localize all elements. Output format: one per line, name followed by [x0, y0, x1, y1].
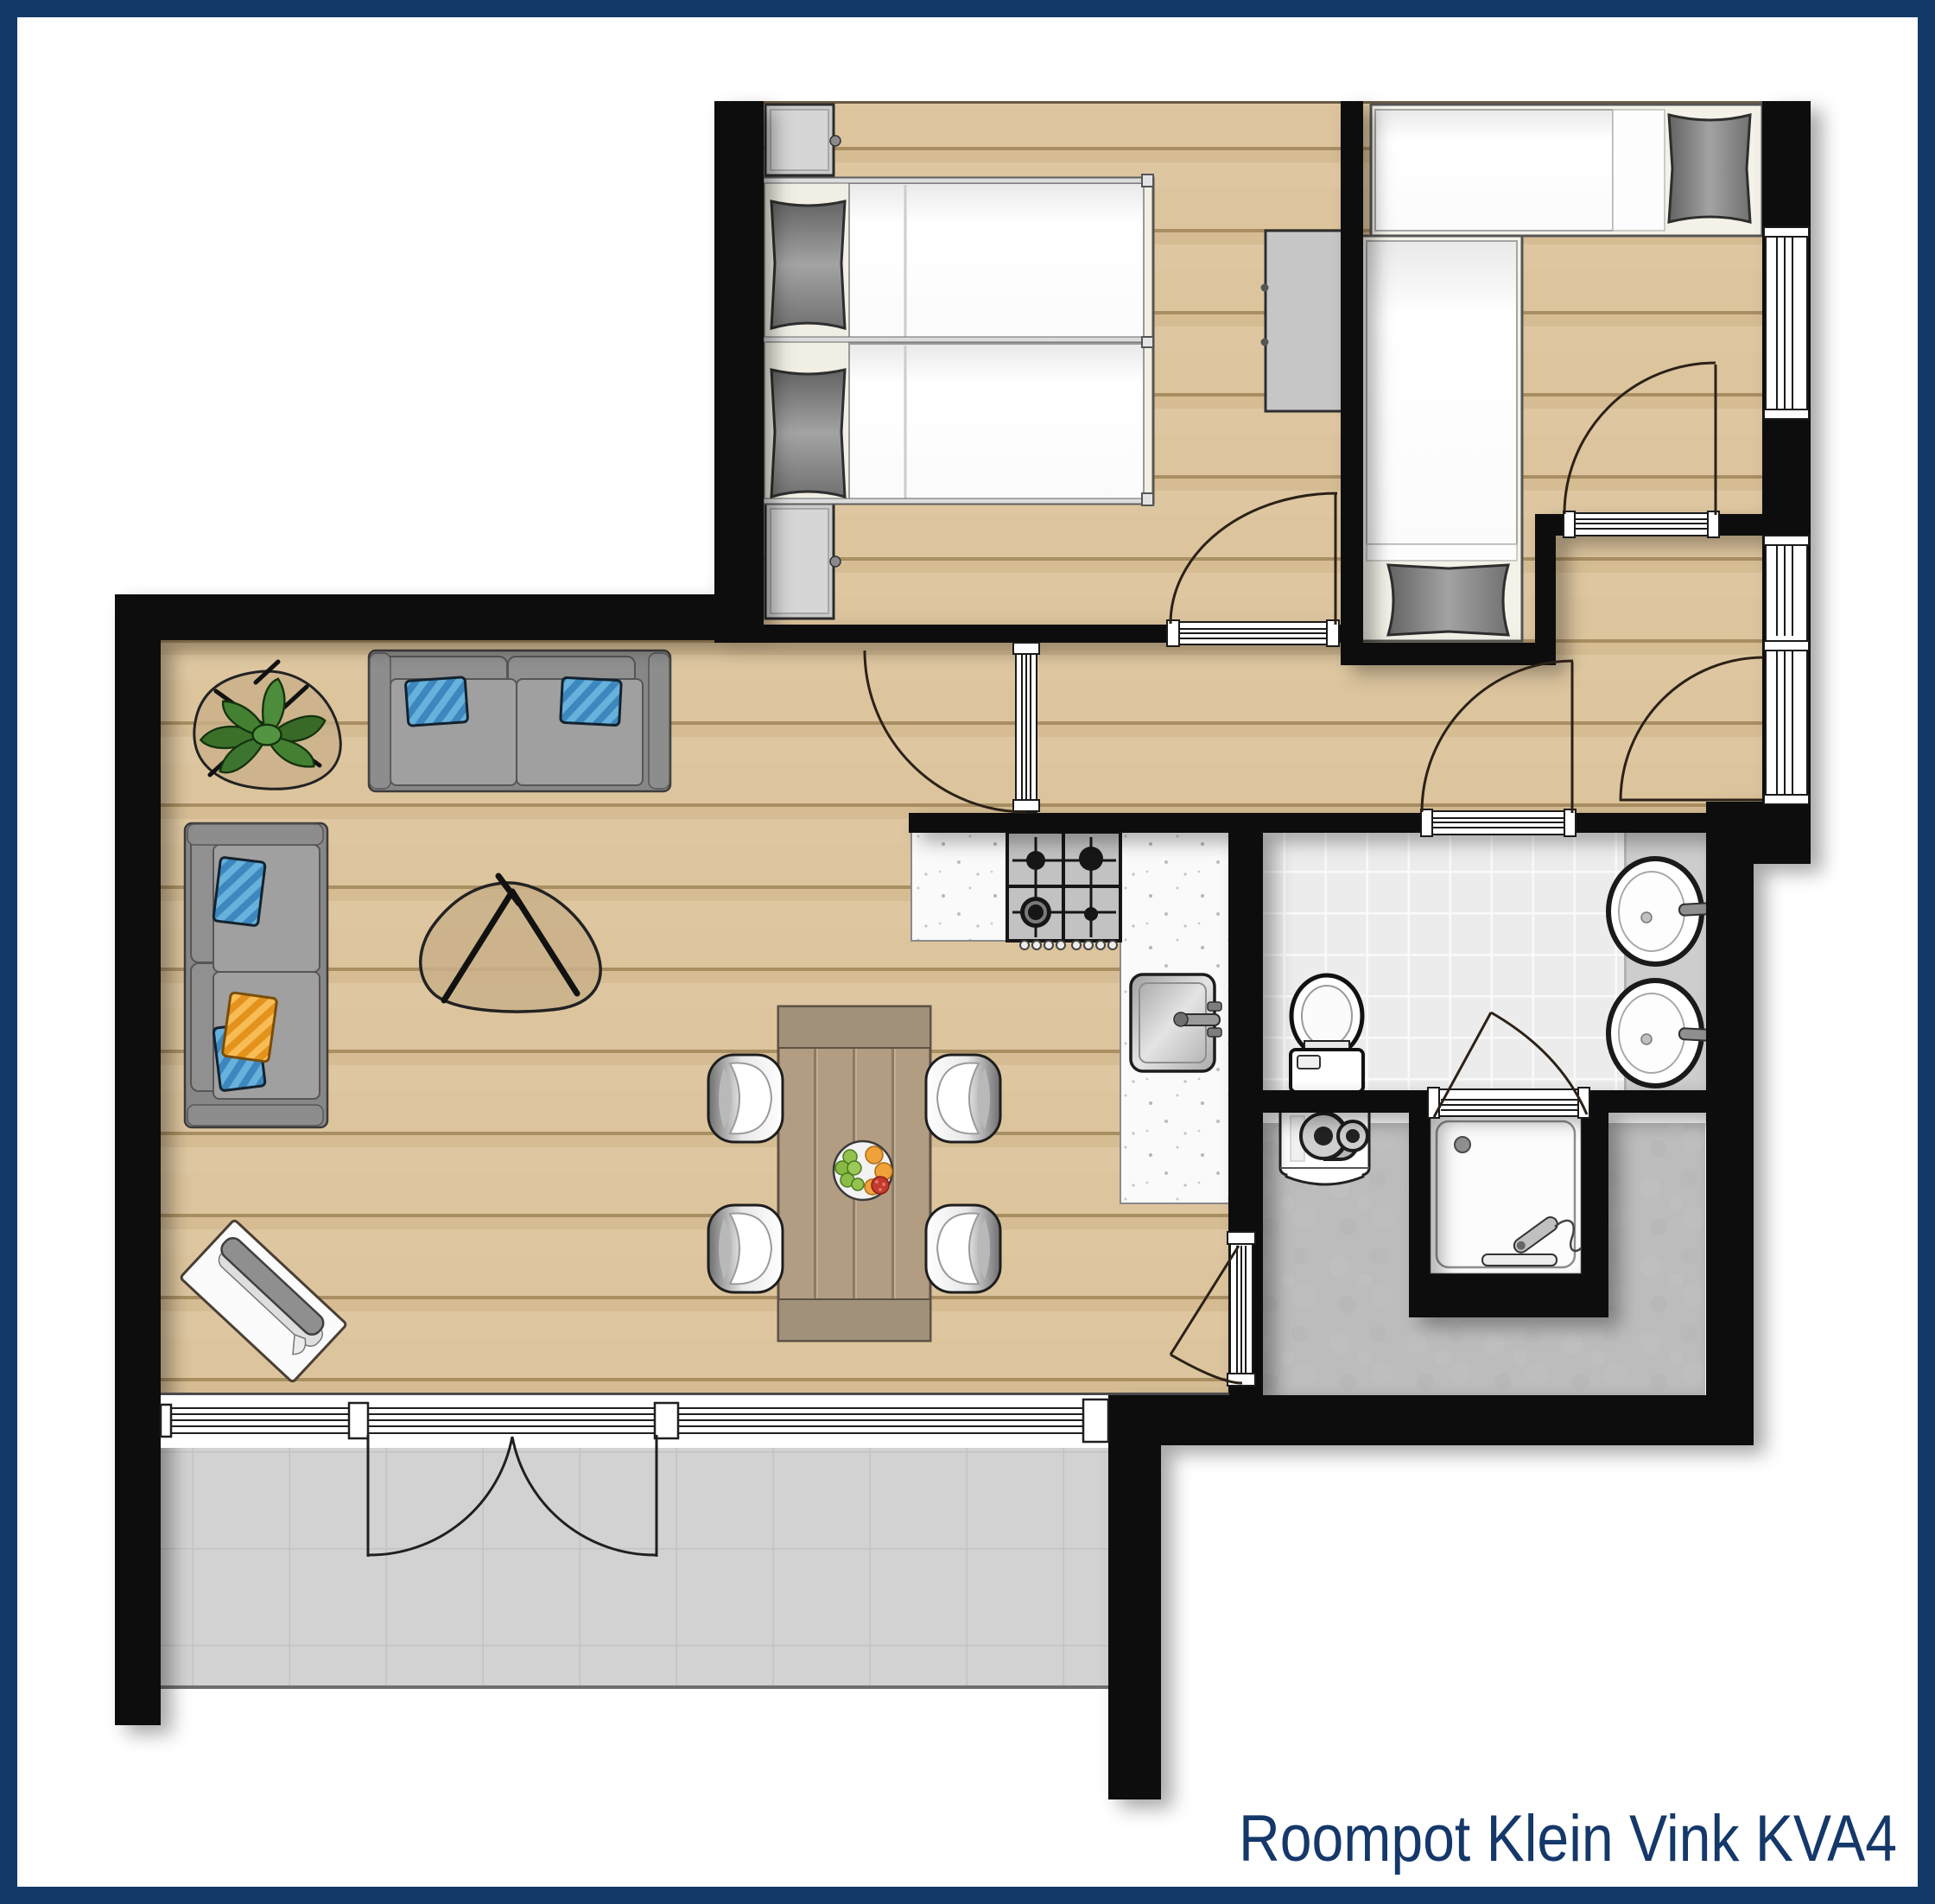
svg-text:Roompot Klein Vink KVA4: Roompot Klein Vink KVA4	[1239, 1802, 1897, 1875]
